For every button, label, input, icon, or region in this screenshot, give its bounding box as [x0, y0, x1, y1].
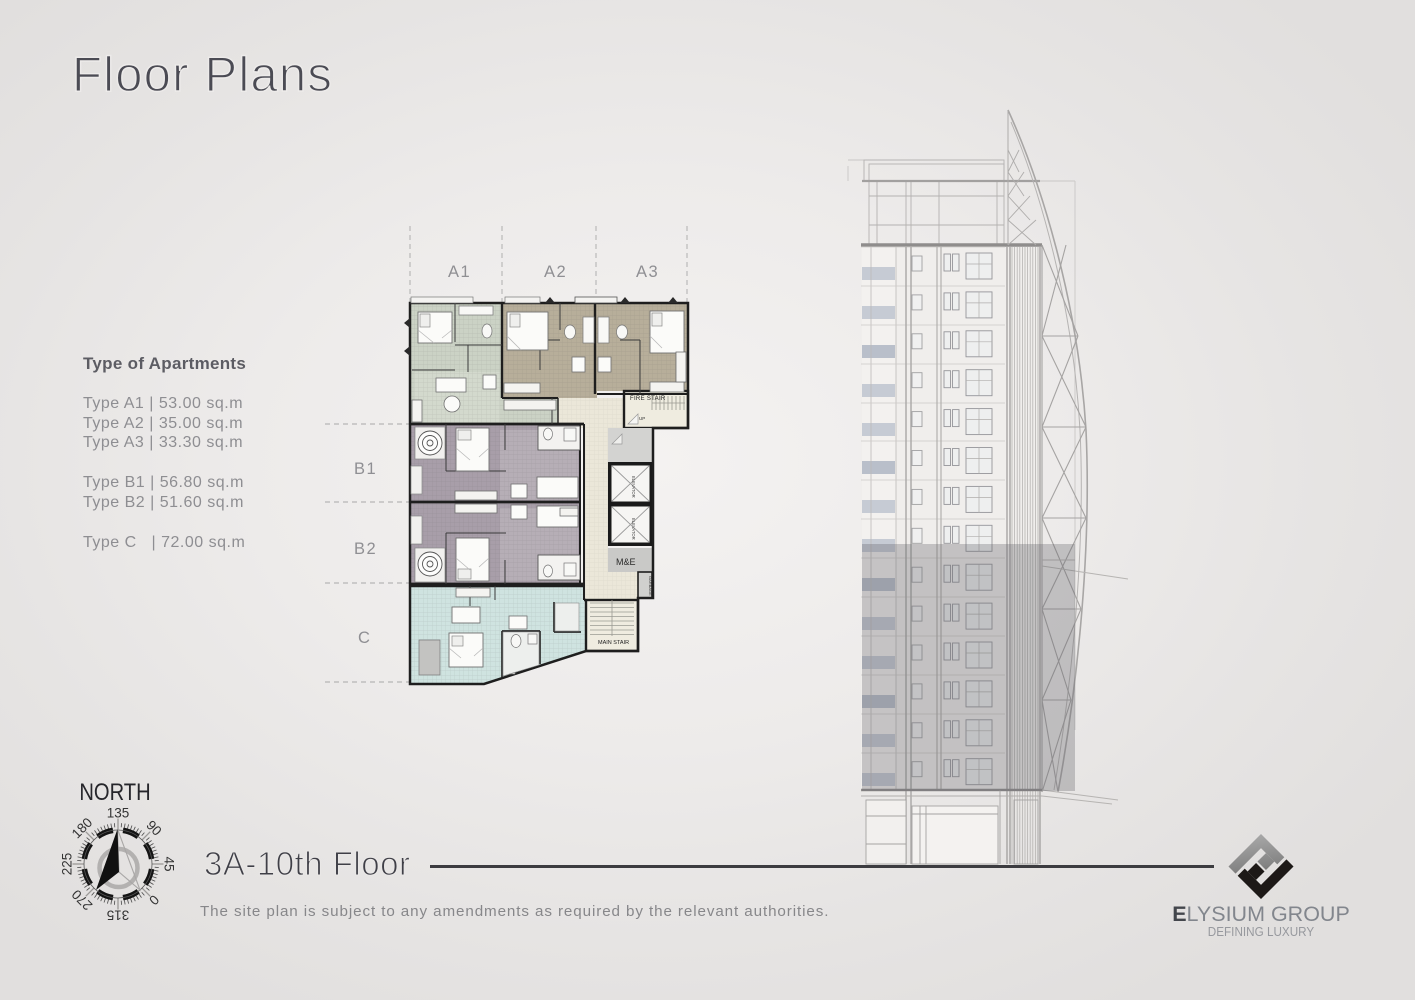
svg-text:UP: UP — [639, 416, 645, 421]
svg-text:A2: A2 — [544, 263, 567, 281]
svg-text:ELEVATOR: ELEVATOR — [631, 476, 636, 498]
svg-text:A1: A1 — [448, 263, 471, 281]
svg-text:B2: B2 — [354, 540, 377, 558]
svg-text:ELEVATOR: ELEVATOR — [631, 518, 636, 540]
svg-text:FIRE STAIR: FIRE STAIR — [630, 396, 666, 402]
svg-text:C: C — [358, 629, 371, 647]
svg-text:MAIN STAIR: MAIN STAIR — [598, 640, 629, 646]
svg-text:B1: B1 — [354, 460, 377, 478]
svg-text:225: 225 — [60, 853, 75, 876]
svg-text:45: 45 — [161, 856, 176, 871]
svg-text:M&E: M&E — [616, 557, 636, 567]
svg-text:A3: A3 — [636, 263, 659, 281]
svg-text:315: 315 — [107, 907, 130, 922]
svg-text:135: 135 — [107, 806, 130, 821]
